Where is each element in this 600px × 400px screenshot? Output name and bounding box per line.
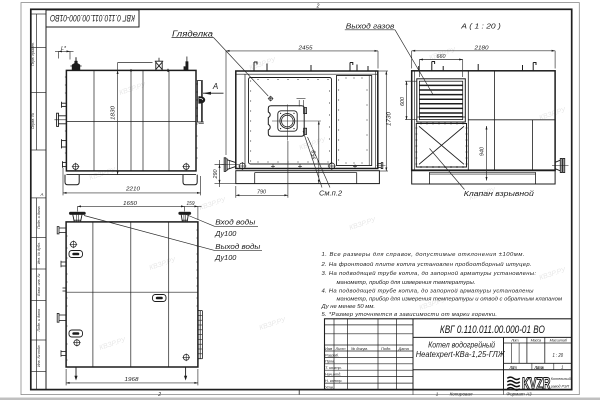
svg-text:2455: 2455 — [297, 45, 313, 51]
svg-text:2210: 2210 — [125, 187, 140, 193]
svg-text:2. На фронтовой плите котла ус: 2. На фронтовой плите котла установлен п… — [321, 261, 532, 268]
svg-text:1 : 20: 1 : 20 — [553, 353, 564, 359]
svg-text:1968: 1968 — [125, 377, 139, 383]
svg-text:Лист: Лист — [508, 365, 517, 370]
svg-text:2: 2 — [157, 392, 161, 398]
svg-text:№ докум.: № докум. — [351, 346, 368, 351]
svg-text:Утв.: Утв. — [325, 384, 334, 389]
svg-text:Формат А3: Формат А3 — [506, 391, 532, 396]
svg-text:940: 940 — [480, 147, 486, 156]
svg-text:Справ. №: Справ. № — [31, 113, 35, 129]
svg-text:Масса: Масса — [531, 339, 542, 343]
svg-text:Подп. и дата: Подп. и дата — [37, 206, 41, 229]
svg-text:1: 1 — [561, 365, 563, 370]
svg-text:790: 790 — [257, 189, 266, 195]
svg-text:3. На подводящей трубе котла,: 3. На подводящей трубе котла, до запорно… — [322, 270, 537, 277]
svg-text:Инв. № дубл.: Инв. № дубл. — [37, 242, 41, 264]
svg-text:1650: 1650 — [123, 201, 137, 207]
svg-text:Листов: Листов — [533, 365, 544, 370]
svg-text:манометр, прибор для измерения: манометр, прибор для измерения температу… — [337, 280, 476, 286]
svg-text:Выход газов: Выход газов — [346, 21, 395, 30]
svg-text:Т. контр.: Т. контр. — [325, 365, 342, 370]
svg-text:1: 1 — [436, 391, 439, 396]
svg-text:Инв. № подл.: Инв. № подл. — [37, 345, 41, 367]
svg-text:Масштаб: Масштаб — [550, 339, 568, 343]
svg-text:Котел водогрейный: Котел водогрейный — [428, 340, 496, 349]
svg-text:290: 290 — [213, 170, 219, 180]
svg-text:Ду100: Ду100 — [214, 253, 236, 262]
svg-text:Перв. примен.: Перв. примен. — [31, 42, 35, 66]
svg-text:Разраб.: Разраб. — [325, 352, 339, 357]
svg-text:Выход воды: Выход воды — [215, 242, 261, 251]
svg-text:1. Все размеры для справок, до: 1. Все размеры для справок, допустимые о… — [322, 252, 525, 258]
svg-text:660: 660 — [437, 54, 446, 60]
svg-text:Клапан взрывной: Клапан взрывной — [464, 189, 534, 198]
svg-text:5. *Размер уточняется в зависи: 5. *Размер уточняется в зависимости от м… — [322, 312, 498, 318]
svg-text:А: А — [212, 82, 218, 91]
svg-text:КВГ 0.110.011.00.000-01 ВО: КВГ 0.110.011.00.000-01 ВО — [440, 324, 545, 336]
svg-text:манометр, прибор для измерения: манометр, прибор для измерения температу… — [337, 296, 563, 302]
svg-text:А ( 1 : 20 ): А ( 1 : 20 ) — [460, 21, 501, 30]
svg-text:Н. контр.: Н. контр. — [325, 378, 343, 383]
svg-text:См.п.2: См.п.2 — [319, 188, 342, 197]
svg-text:KVZR: KVZR — [522, 375, 551, 393]
svg-text:А: А — [39, 192, 43, 197]
svg-text:Гляделка: Гляделка — [172, 29, 214, 38]
svg-text:Подп.: Подп. — [381, 346, 391, 351]
svg-text:159: 159 — [187, 201, 195, 207]
svg-text:L*: L* — [61, 46, 67, 52]
svg-text:Пров.: Пров. — [325, 359, 335, 364]
svg-text:Дата: Дата — [398, 346, 410, 351]
svg-text:Вход воды: Вход воды — [215, 218, 256, 227]
svg-text:Копировал: Копировал — [450, 391, 473, 396]
svg-text:2: 2 — [316, 4, 320, 10]
svg-text:Котельный: Котельный — [551, 377, 571, 381]
svg-text:600: 600 — [400, 97, 406, 106]
svg-text:4. На подводящей трубе котла,: 4. На подводящей трубе котла, до запорно… — [322, 288, 535, 295]
svg-text:Ду не менее 50 мм.: Ду не менее 50 мм. — [321, 304, 376, 310]
svg-text:Ду100: Ду100 — [214, 229, 236, 238]
svg-text:Изм: Изм — [325, 346, 333, 351]
svg-text:Лист: Лист — [335, 346, 347, 351]
svg-text:Подп. и дата: Подп. и дата — [37, 309, 41, 332]
svg-text:Лит.: Лит. — [510, 339, 519, 343]
svg-text:Heatexpert-КВа-1,25-ГЛЖ: Heatexpert-КВа-1,25-ГЛЖ — [416, 350, 506, 359]
svg-text:1830: 1830 — [111, 106, 117, 120]
svg-text:КВГ 0.110.011.00.000-01ВО: КВГ 0.110.011.00.000-01ВО — [50, 13, 135, 23]
svg-text:2180: 2180 — [473, 45, 488, 51]
svg-text:1730: 1730 — [387, 112, 393, 126]
svg-text:Взам. инв. №: Взам. инв. № — [37, 273, 41, 295]
svg-text:завод РЭП: завод РЭП — [550, 385, 570, 389]
svg-text:Нач.отд.: Нач.отд. — [325, 372, 341, 377]
